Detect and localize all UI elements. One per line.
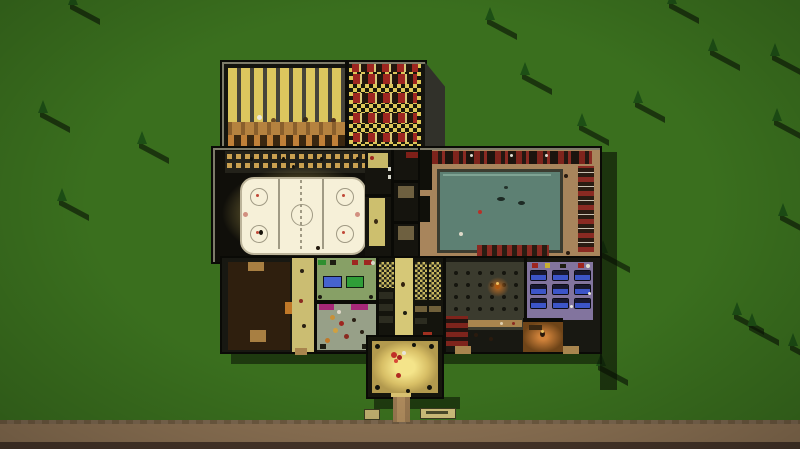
pool-hall-door	[420, 196, 430, 222]
pine-tree-6	[633, 90, 643, 103]
bowling-lanes	[228, 68, 345, 122]
porch-step	[563, 346, 579, 354]
visitor	[299, 299, 303, 303]
faceoff-circle	[250, 188, 268, 206]
spectator	[356, 157, 359, 161]
pool-lockers	[432, 151, 592, 164]
goal-crease	[243, 212, 248, 217]
lockers	[429, 262, 441, 300]
pine-tree-11	[732, 302, 742, 315]
lobby-plant	[406, 389, 410, 393]
lounge-bench	[248, 262, 264, 271]
stool-grid-cell	[514, 283, 518, 287]
arcade-prop	[560, 264, 566, 268]
road-surface	[0, 424, 800, 442]
wall	[391, 150, 394, 262]
diner-booth-row	[353, 74, 417, 84]
arcade-visitor	[570, 305, 573, 308]
pine-tree-13-shadow	[790, 344, 800, 366]
locker-bench	[379, 316, 393, 323]
entrance-path-center	[397, 397, 405, 422]
lounge-door-glow	[285, 302, 292, 314]
deck-visitor	[566, 251, 570, 255]
stool-grid-cell	[514, 271, 518, 275]
visitor	[401, 282, 405, 287]
pine-tree-1-shadow	[40, 111, 70, 133]
locker-bench	[415, 306, 427, 312]
arcade-visitor	[588, 292, 591, 295]
stool-grid-cell	[466, 307, 470, 311]
pine-tree-12-shadow	[749, 324, 779, 346]
stool-grid-cell	[502, 271, 506, 275]
porch-step	[455, 346, 471, 354]
pine-tree-12	[747, 313, 757, 326]
arcade-machine-grid-cell	[575, 271, 590, 280]
billiard-table-blue	[323, 276, 342, 288]
stool-grid-cell	[514, 295, 518, 299]
pine-tree-10-shadow	[780, 214, 800, 236]
wall	[365, 194, 391, 197]
pine-tree-8-shadow	[772, 54, 800, 76]
game-viewport[interactable]	[0, 0, 800, 449]
lobby-plant	[429, 344, 434, 349]
stool-grid-cell	[466, 295, 470, 299]
pine-tree-17	[667, 0, 677, 4]
visitor	[374, 219, 378, 224]
stool-grid-cell	[454, 283, 458, 287]
arcade-machine-grid-cell	[575, 299, 590, 308]
plant	[369, 295, 373, 299]
corridor-main	[395, 258, 413, 338]
patron	[344, 334, 349, 339]
pine-tree-5-shadow	[579, 124, 609, 146]
pine-tree-18	[485, 7, 495, 20]
games-prop	[330, 260, 336, 265]
deck-visitor	[564, 174, 568, 178]
arcade-machine-grid-cell	[553, 285, 568, 294]
patron	[352, 318, 356, 322]
pool-edge-highlight	[443, 174, 551, 176]
lounger-row	[477, 245, 549, 256]
patron	[489, 337, 493, 341]
red-prop	[370, 156, 374, 160]
rink-blue-line	[278, 179, 280, 249]
arcade-prop	[545, 263, 550, 268]
bar-counter-magenta	[319, 304, 334, 310]
dim-room	[398, 226, 414, 240]
building-shadow-right	[600, 152, 617, 390]
lobby-plant	[412, 343, 416, 347]
patron	[333, 328, 338, 333]
stool-grid-cell	[490, 271, 494, 275]
lockers	[415, 262, 427, 300]
goal-crease	[355, 212, 360, 217]
lounger-column	[578, 166, 594, 252]
wall	[394, 221, 422, 224]
stool-grid-cell	[454, 295, 458, 299]
games-prop	[318, 260, 326, 265]
bar-prop	[320, 344, 326, 349]
porch-step	[295, 348, 307, 355]
pine-tree-4-shadow	[522, 73, 552, 95]
pine-tree-13	[788, 333, 798, 346]
locker-bench	[429, 306, 441, 312]
diner-booth-row	[353, 113, 417, 123]
swimmer	[459, 232, 463, 236]
bowling-seats	[228, 135, 345, 147]
swimming-pool	[437, 169, 563, 253]
lobby-visitor	[402, 351, 406, 355]
visitor	[403, 311, 407, 315]
visitor	[302, 324, 306, 328]
stool-grid-cell	[466, 271, 470, 275]
spectator	[320, 157, 323, 161]
spectator	[250, 157, 253, 161]
pine-tree-9	[772, 108, 782, 121]
diner-booth-row	[353, 93, 417, 103]
rink-blue-line	[322, 179, 324, 249]
games-prop	[352, 260, 358, 265]
wall	[394, 180, 422, 183]
diner-booth-row	[353, 133, 417, 142]
swimmer	[478, 210, 482, 214]
counter-item	[500, 322, 503, 325]
pine-tree-3	[137, 131, 147, 144]
patron	[325, 338, 330, 343]
locker-bench	[379, 292, 393, 299]
patron	[360, 330, 364, 334]
billiard-table-green	[346, 276, 364, 288]
arcade-machine-grid-cell	[531, 271, 546, 280]
lobby-plant	[375, 344, 380, 349]
stool-grid-cell	[478, 271, 482, 275]
office-desk	[529, 325, 542, 330]
skater	[259, 230, 263, 235]
faceoff-dot	[342, 194, 345, 197]
pine-tree-7-shadow	[710, 49, 740, 71]
road-shoulder	[0, 442, 800, 449]
lobby-visitor	[396, 373, 401, 378]
office-person-head	[541, 330, 544, 333]
stool-grid-cell	[454, 307, 458, 311]
pine-tree-16	[68, 0, 78, 5]
locker-bench	[415, 318, 427, 324]
pine-tree-2-shadow	[59, 199, 89, 221]
stool-grid-cell	[466, 283, 470, 287]
arcade-machine-grid-cell	[531, 285, 546, 294]
lockers	[379, 262, 394, 288]
pine-tree-6-shadow	[635, 101, 665, 123]
bowling-ball	[257, 115, 262, 120]
locker-speck	[470, 154, 473, 157]
dim-room	[398, 186, 414, 198]
arcade-prop	[586, 264, 590, 268]
lobby-plant	[427, 385, 432, 390]
bowling-approach	[228, 122, 345, 135]
swimmer	[504, 186, 508, 189]
pine-tree-5	[577, 113, 587, 126]
pine-tree-10	[778, 203, 788, 216]
stool-grid-cell	[514, 307, 518, 311]
stool-grid-cell	[490, 307, 494, 311]
locker-speck	[510, 154, 513, 157]
faceoff-circle	[336, 225, 354, 243]
counter-item	[512, 322, 515, 325]
bar-shelf	[446, 316, 468, 346]
lobby-plant	[375, 385, 380, 390]
pine-tree-1	[38, 100, 48, 113]
pool-hall-corner	[420, 150, 432, 190]
arcade-machine-grid-cell	[553, 271, 568, 280]
faceoff-dot	[256, 194, 259, 197]
stool-grid-cell	[502, 307, 506, 311]
pine-tree-17-shadow	[669, 2, 699, 24]
arcade-prop	[578, 263, 584, 268]
stool-grid-cell	[454, 271, 458, 275]
stool-grid-cell	[478, 283, 482, 287]
pine-tree-18-shadow	[487, 18, 517, 40]
lounge-bench	[250, 330, 266, 342]
visitor	[300, 269, 304, 273]
bench-outside	[364, 409, 380, 420]
pine-tree-3-shadow	[139, 142, 169, 164]
arcade-machine-grid-cell	[531, 299, 546, 308]
spectator	[282, 157, 285, 161]
pine-tree-2	[57, 188, 67, 201]
swimmer	[518, 201, 525, 205]
bar-counter-magenta	[351, 304, 368, 310]
rink-center-circle	[291, 204, 313, 226]
pine-tree-9-shadow	[774, 119, 800, 141]
sign-text-marks	[426, 411, 448, 414]
patron	[337, 310, 341, 314]
faceoff-circle	[336, 188, 354, 206]
pub-person-head	[496, 282, 499, 285]
swimmer	[497, 197, 505, 201]
patron	[474, 333, 478, 337]
arcade-prop	[532, 263, 538, 268]
stool-grid-cell	[478, 307, 482, 311]
east-wall-face	[425, 62, 445, 150]
lobby-visitor	[394, 359, 398, 363]
pine-tree-8	[770, 43, 780, 56]
pine-tree-4	[520, 62, 530, 75]
red-cabinet	[406, 152, 418, 158]
pine-tree-7	[708, 38, 718, 51]
diner-counter	[352, 64, 418, 72]
stool-grid-cell	[478, 295, 482, 299]
patron	[339, 321, 344, 326]
arcade-machine-grid-cell	[553, 299, 568, 308]
locker-bench	[379, 304, 393, 311]
patron	[330, 315, 335, 320]
plant	[318, 295, 322, 299]
games-prop	[371, 261, 375, 265]
pine-tree-16-shadow	[70, 3, 100, 25]
locker-speck	[545, 154, 548, 157]
skater	[316, 246, 320, 250]
faceoff-dot	[342, 231, 345, 234]
